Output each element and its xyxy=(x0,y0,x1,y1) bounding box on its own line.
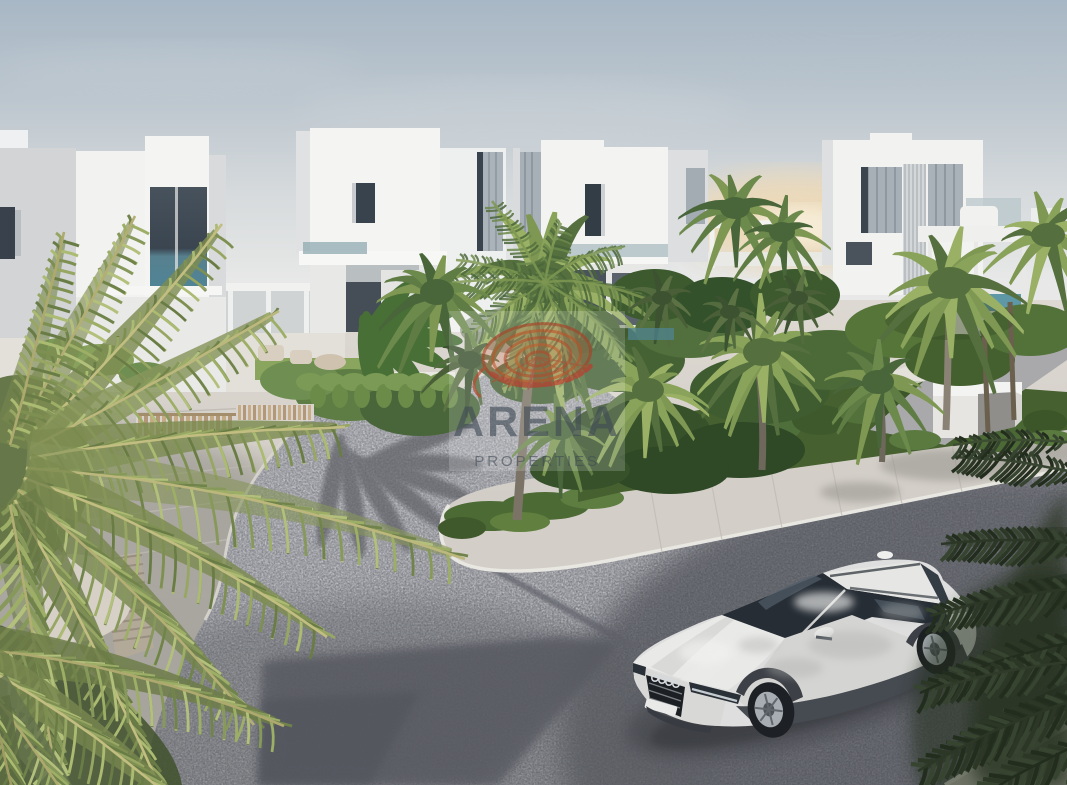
svg-text:ARENA: ARENA xyxy=(453,398,621,446)
svg-text:PROPERTIES: PROPERTIES xyxy=(474,453,600,470)
